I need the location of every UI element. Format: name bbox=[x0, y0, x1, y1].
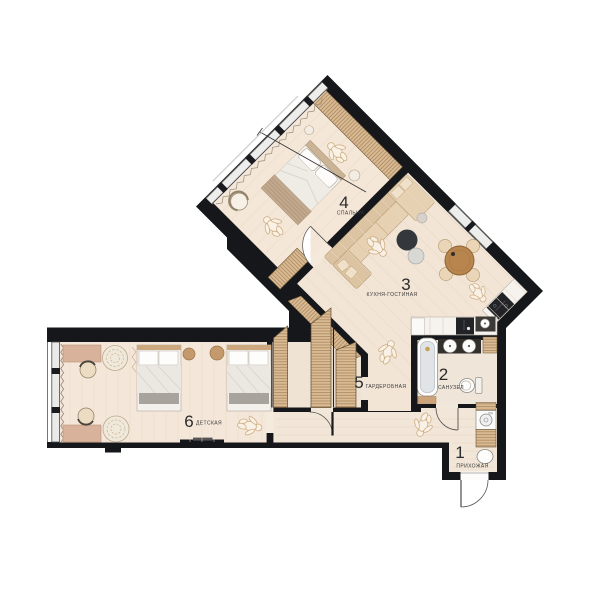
svg-text:САНУЗЕЛ: САНУЗЕЛ bbox=[438, 385, 464, 391]
svg-text:5: 5 bbox=[354, 373, 363, 392]
svg-text:СПАЛЬНЯ: СПАЛЬНЯ bbox=[337, 211, 364, 217]
svg-text:2: 2 bbox=[439, 365, 448, 384]
svg-text:ДЕТСКАЯ: ДЕТСКАЯ bbox=[196, 421, 222, 427]
svg-text:1: 1 bbox=[455, 443, 464, 462]
svg-text:ПРИХОЖАЯ: ПРИХОЖАЯ bbox=[456, 464, 488, 470]
svg-text:6: 6 bbox=[184, 412, 193, 431]
svg-text:4: 4 bbox=[339, 193, 348, 212]
svg-text:КУХНЯ-ГОСТИНАЯ: КУХНЯ-ГОСТИНАЯ bbox=[367, 292, 418, 298]
svg-text:ГАРДЕРОБНАЯ: ГАРДЕРОБНАЯ bbox=[366, 384, 407, 390]
